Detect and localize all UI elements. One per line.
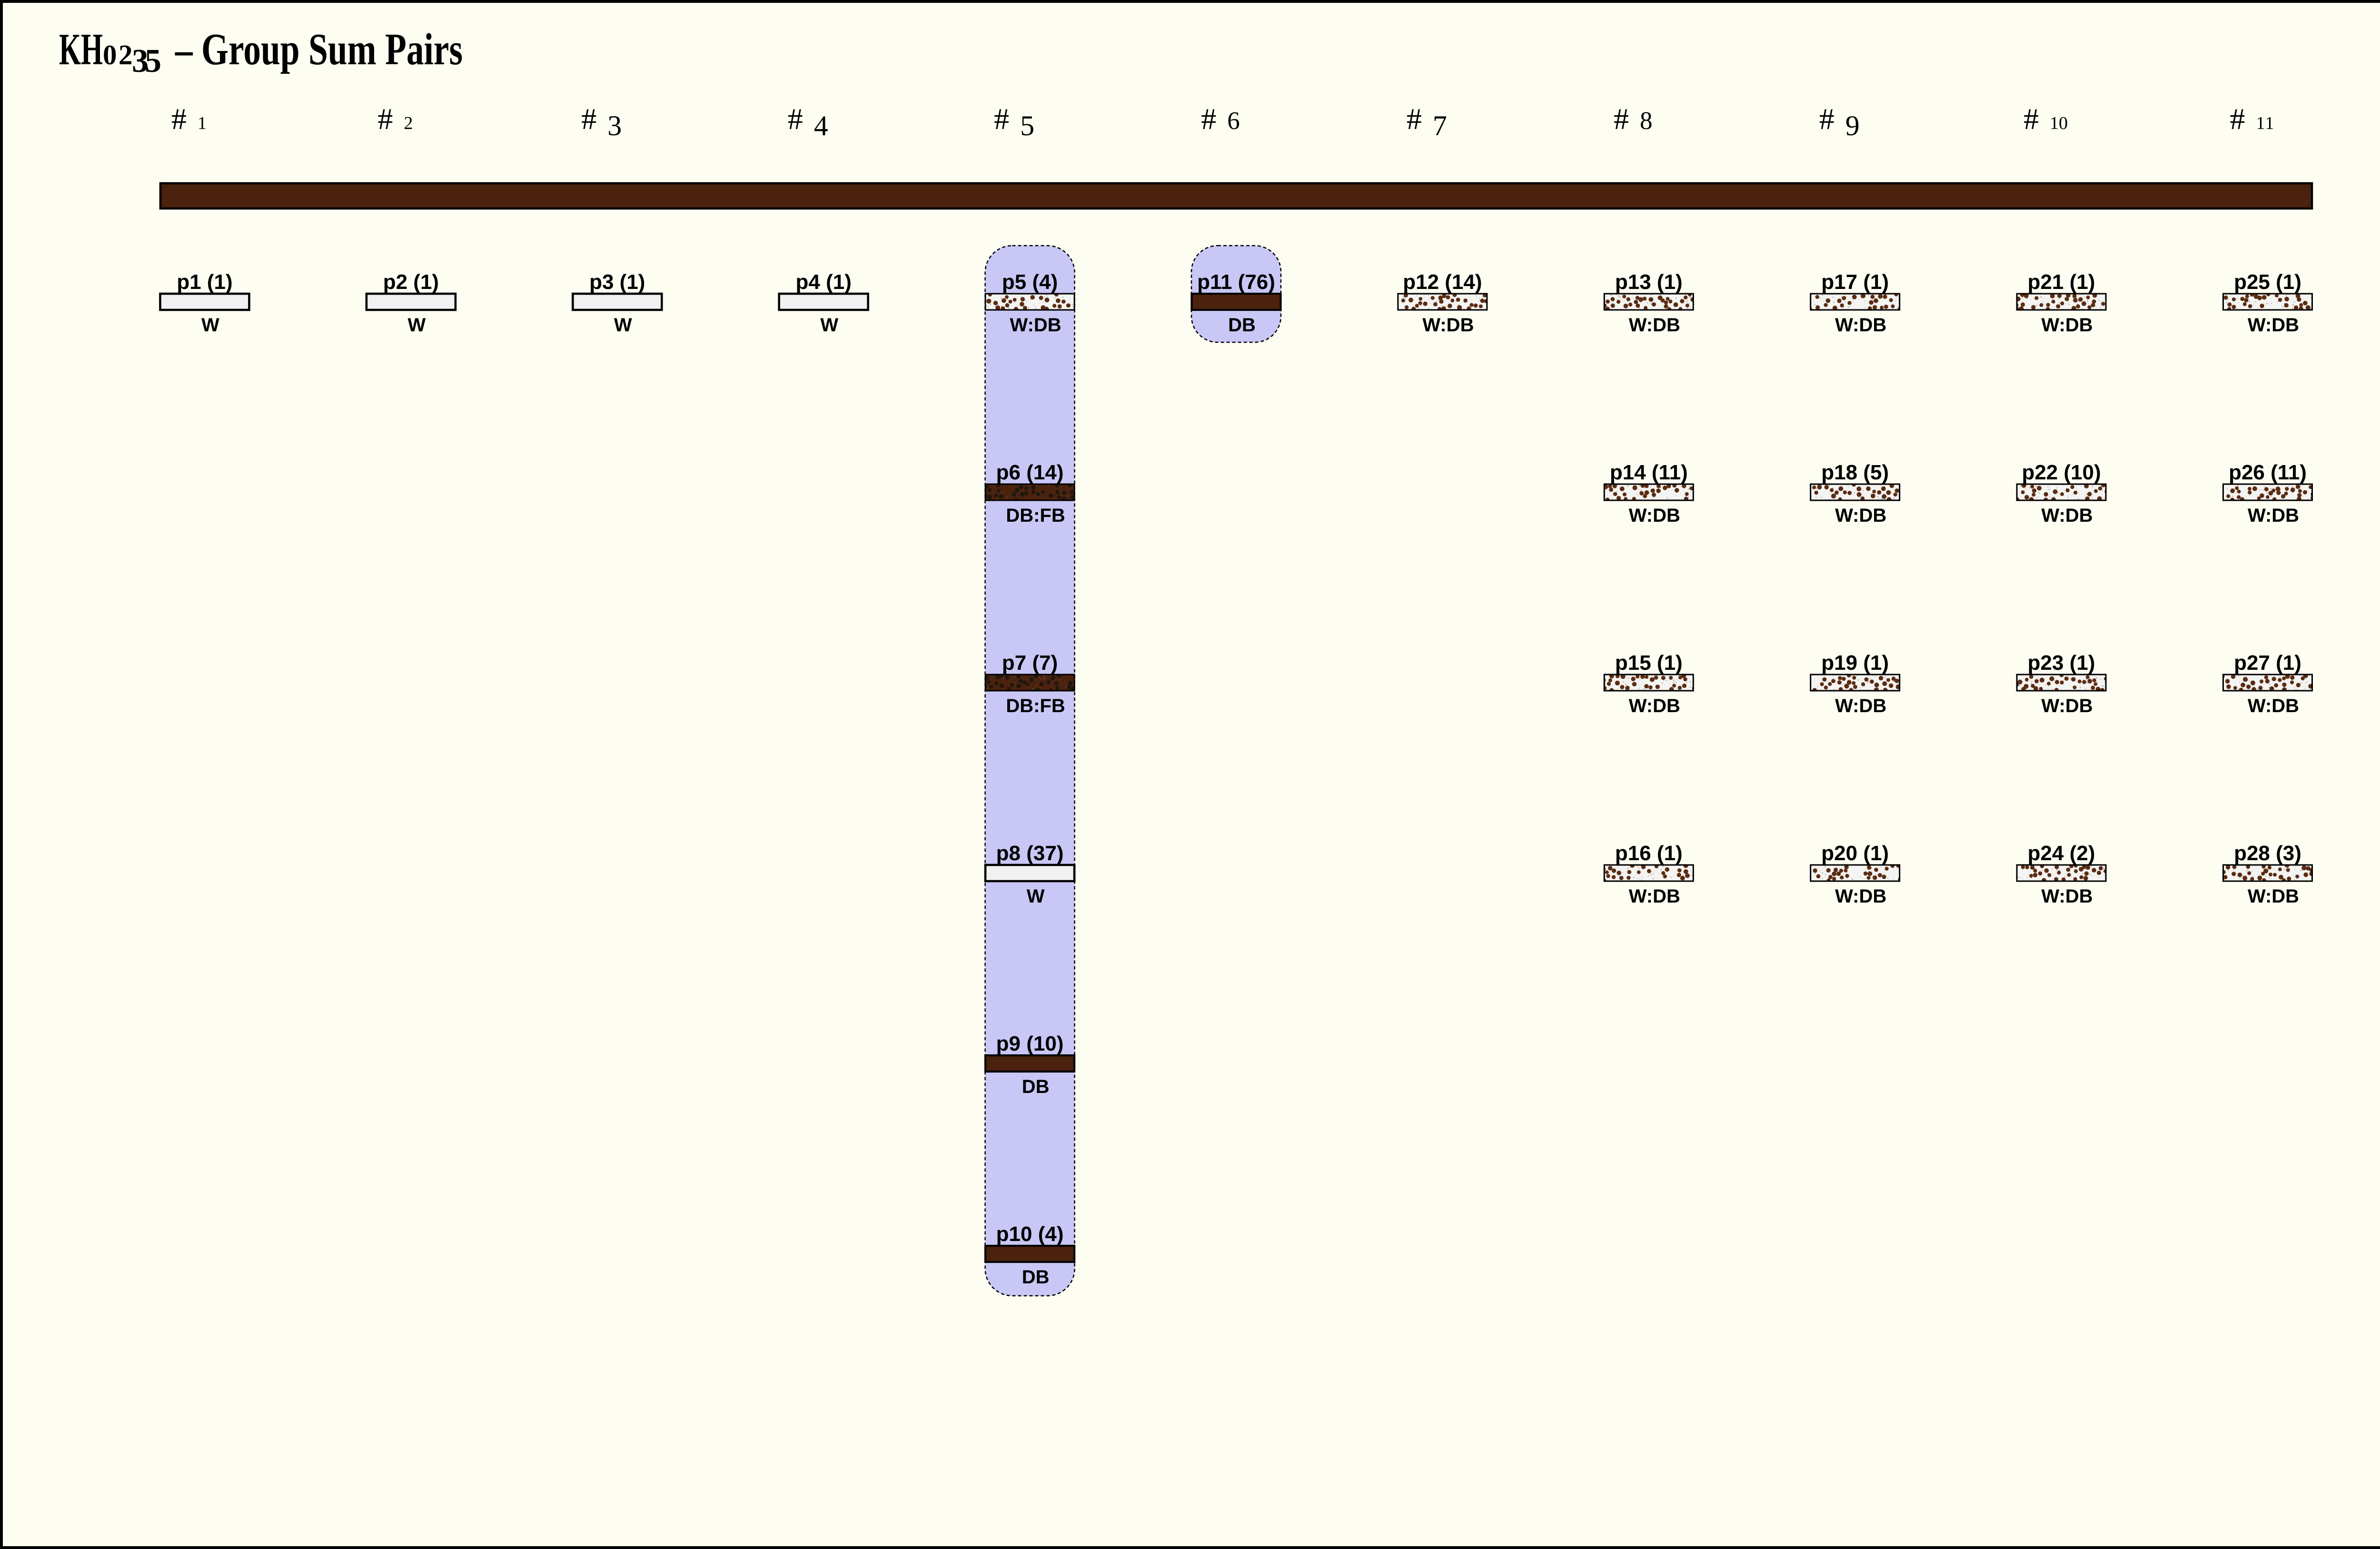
svg-text:DB: DB <box>1022 1267 1050 1288</box>
svg-text:p14 (11): p14 (11) <box>1610 461 1688 484</box>
svg-text:W:DB: W:DB <box>2042 315 2093 336</box>
svg-text:p4 (1): p4 (1) <box>796 270 852 294</box>
svg-text:p28 (3): p28 (3) <box>2234 842 2301 865</box>
svg-text:p16 (1): p16 (1) <box>1615 842 1683 865</box>
svg-text:p21 (1): p21 (1) <box>2028 270 2095 294</box>
svg-text:W:DB: W:DB <box>1835 695 1886 716</box>
svg-text:W: W <box>408 315 426 336</box>
svg-text:W:DB: W:DB <box>1629 505 1680 526</box>
svg-text:DB:FB: DB:FB <box>1006 505 1065 526</box>
svg-text:W:DB: W:DB <box>2248 505 2299 526</box>
svg-text:p22 (10): p22 (10) <box>2022 461 2101 484</box>
svg-text:W:DB: W:DB <box>1629 315 1680 336</box>
svg-text:W:DB: W:DB <box>1629 886 1680 907</box>
svg-text:DB: DB <box>1022 1076 1050 1097</box>
svg-text:p25 (1): p25 (1) <box>2234 270 2301 294</box>
svg-text:– Group Sum Pairs: – Group Sum Pairs <box>175 25 463 74</box>
svg-text:p20 (1): p20 (1) <box>1821 842 1889 865</box>
svg-text:p18 (5): p18 (5) <box>1821 461 1889 484</box>
svg-text:p17 (1): p17 (1) <box>1821 270 1889 294</box>
svg-text:5: 5 <box>145 43 161 79</box>
svg-text:2: 2 <box>119 39 133 70</box>
svg-text:W: W <box>201 315 219 336</box>
svg-text:p8 (37): p8 (37) <box>996 842 1064 865</box>
svg-text:W:DB: W:DB <box>1629 695 1680 716</box>
svg-text:W:DB: W:DB <box>2248 315 2299 336</box>
svg-text:p9 (10): p9 (10) <box>996 1032 1064 1055</box>
svg-text:W:DB: W:DB <box>1422 315 1474 336</box>
svg-text:W:DB: W:DB <box>2042 695 2093 716</box>
svg-text:W: W <box>820 315 838 336</box>
svg-text:W:DB: W:DB <box>1835 505 1886 526</box>
svg-text:0: 0 <box>103 39 117 70</box>
svg-text:p23 (1): p23 (1) <box>2028 651 2095 675</box>
svg-text:p2 (1): p2 (1) <box>383 270 439 294</box>
svg-text:p13 (1): p13 (1) <box>1615 270 1683 294</box>
svg-text:W:DB: W:DB <box>2042 505 2093 526</box>
svg-text:W:DB: W:DB <box>2248 886 2299 907</box>
svg-text:p11 (76): p11 (76) <box>1197 270 1275 294</box>
svg-text:DB:FB: DB:FB <box>1006 695 1065 716</box>
svg-text:p5 (4): p5 (4) <box>1002 270 1058 294</box>
svg-text:W:DB: W:DB <box>1835 315 1886 336</box>
svg-text:p6 (14): p6 (14) <box>996 461 1064 484</box>
svg-text:DB: DB <box>1228 315 1256 336</box>
svg-text:p1 (1): p1 (1) <box>177 270 232 294</box>
svg-text:W: W <box>1027 886 1045 907</box>
svg-text:p15 (1): p15 (1) <box>1615 651 1683 675</box>
svg-text:p24 (2): p24 (2) <box>2028 842 2095 865</box>
svg-text:W:DB: W:DB <box>1010 315 1061 336</box>
svg-text:p19 (1): p19 (1) <box>1821 651 1889 675</box>
svg-text:W:DB: W:DB <box>1835 886 1886 907</box>
svg-text:p3 (1): p3 (1) <box>589 270 645 294</box>
svg-text:W:DB: W:DB <box>2042 886 2093 907</box>
svg-text:p26 (11): p26 (11) <box>2229 461 2307 484</box>
svg-text:p12 (14): p12 (14) <box>1403 270 1482 294</box>
svg-text:W: W <box>614 315 632 336</box>
svg-text:p27 (1): p27 (1) <box>2234 651 2301 675</box>
svg-text:KH: KH <box>59 25 103 74</box>
svg-text:p10 (4): p10 (4) <box>996 1222 1064 1246</box>
svg-text:W:DB: W:DB <box>2248 695 2299 716</box>
svg-text:p7 (7): p7 (7) <box>1002 651 1058 675</box>
